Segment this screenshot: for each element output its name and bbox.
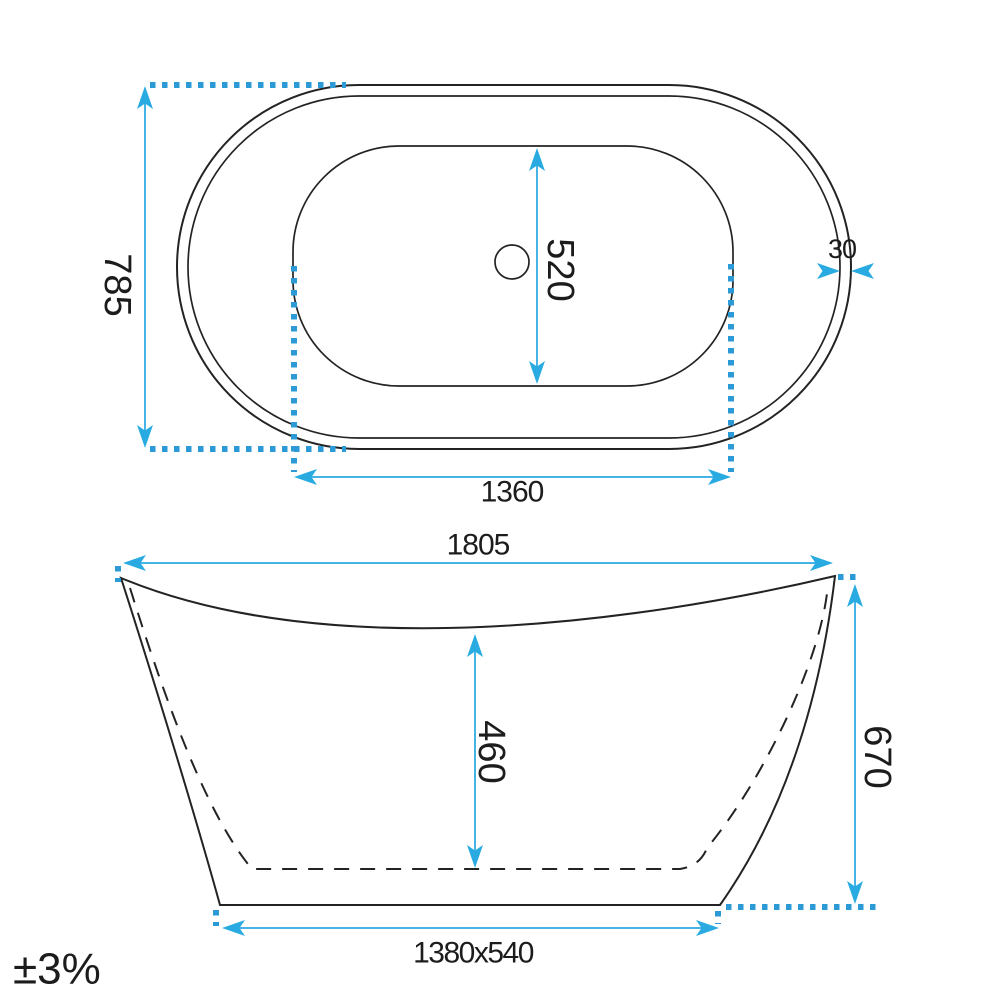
dim-670-label: 670 [856, 725, 898, 788]
dimension-basin-depth: 460 [467, 634, 512, 868]
drawing-canvas: 785 520 30 1360 1805 [0, 0, 1000, 1000]
dim-785-label: 785 [96, 253, 138, 316]
dimension-overall-width: 785 [96, 85, 346, 449]
bathtub-technical-drawing: 785 520 30 1360 1805 [0, 0, 1000, 1000]
dimension-rim-thickness: 30 [817, 234, 874, 279]
dim-1380x540-label: 1380x540 [413, 937, 534, 970]
side-view: 1805 670 460 13 [118, 529, 898, 970]
dimension-basin-width: 520 [529, 148, 581, 384]
dim-460-label: 460 [470, 720, 512, 783]
top-view: 785 520 30 1360 [96, 85, 874, 509]
arrow-left-icon [851, 263, 874, 279]
dim-30-label: 30 [828, 234, 856, 264]
dimension-overall-height: 670 [726, 584, 898, 907]
tolerance-note: ±3% [13, 945, 101, 994]
dimension-overall-length: 1805 [118, 529, 856, 583]
outer-rim-outline [177, 85, 851, 449]
arrow-right-icon [817, 263, 840, 279]
drain-hole [495, 245, 529, 279]
basin-outline [293, 146, 733, 386]
dim-520-label: 520 [539, 238, 581, 301]
dimension-base-size: 1380x540 [216, 910, 719, 970]
dim-1805-label: 1805 [447, 529, 510, 562]
dim-1360-label: 1360 [481, 476, 544, 509]
